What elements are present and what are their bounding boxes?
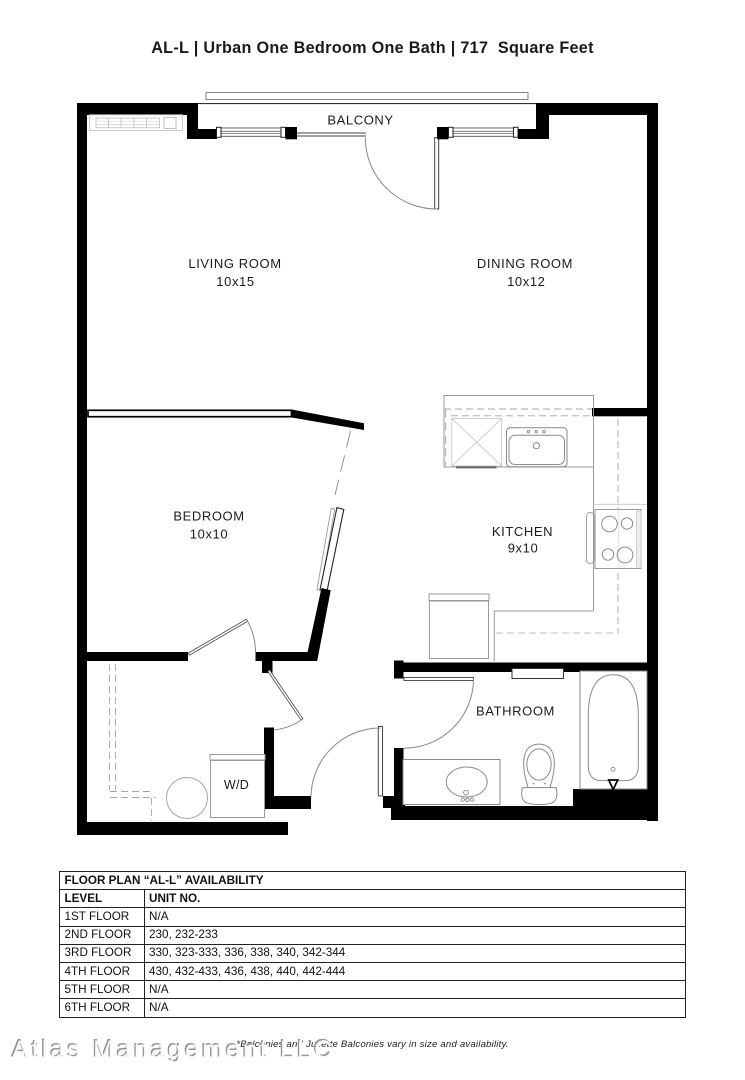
svg-text:W/D: W/D	[224, 778, 249, 792]
svg-text:BEDROOM: BEDROOM	[173, 509, 244, 524]
svg-text:BALCONY: BALCONY	[327, 113, 393, 128]
svg-text:10x15: 10x15	[216, 274, 254, 289]
svg-text:DINING ROOM: DINING ROOM	[477, 256, 573, 271]
svg-text:LIVING ROOM: LIVING ROOM	[188, 256, 281, 271]
svg-text:BATHROOM: BATHROOM	[476, 704, 555, 719]
svg-text:10x12: 10x12	[507, 274, 545, 289]
svg-text:9x10: 9x10	[508, 541, 539, 556]
svg-text:KITCHEN: KITCHEN	[492, 524, 553, 539]
svg-text:10x10: 10x10	[190, 527, 228, 542]
